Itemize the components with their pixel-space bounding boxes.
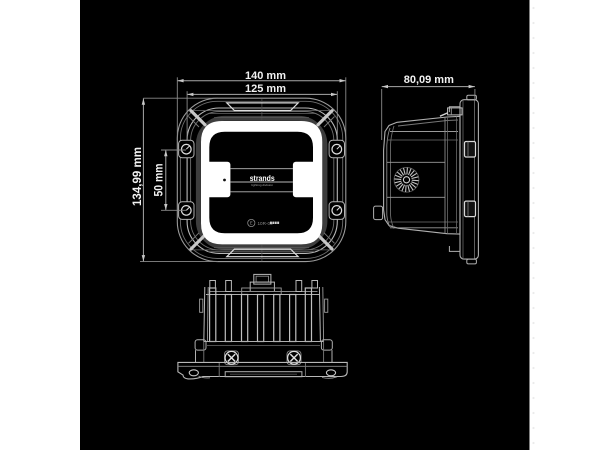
svg-text:strands: strands [250, 174, 275, 183]
svg-text:50 mm: 50 mm [152, 164, 166, 197]
svg-text:E: E [250, 221, 253, 226]
svg-text:140 mm: 140 mm [245, 70, 286, 82]
svg-text:80,09 mm: 80,09 mm [404, 74, 454, 86]
svg-text:134,99 mm: 134,99 mm [130, 147, 144, 206]
svg-text:125 mm: 125 mm [245, 83, 286, 95]
svg-text:lighting division: lighting division [251, 183, 273, 187]
